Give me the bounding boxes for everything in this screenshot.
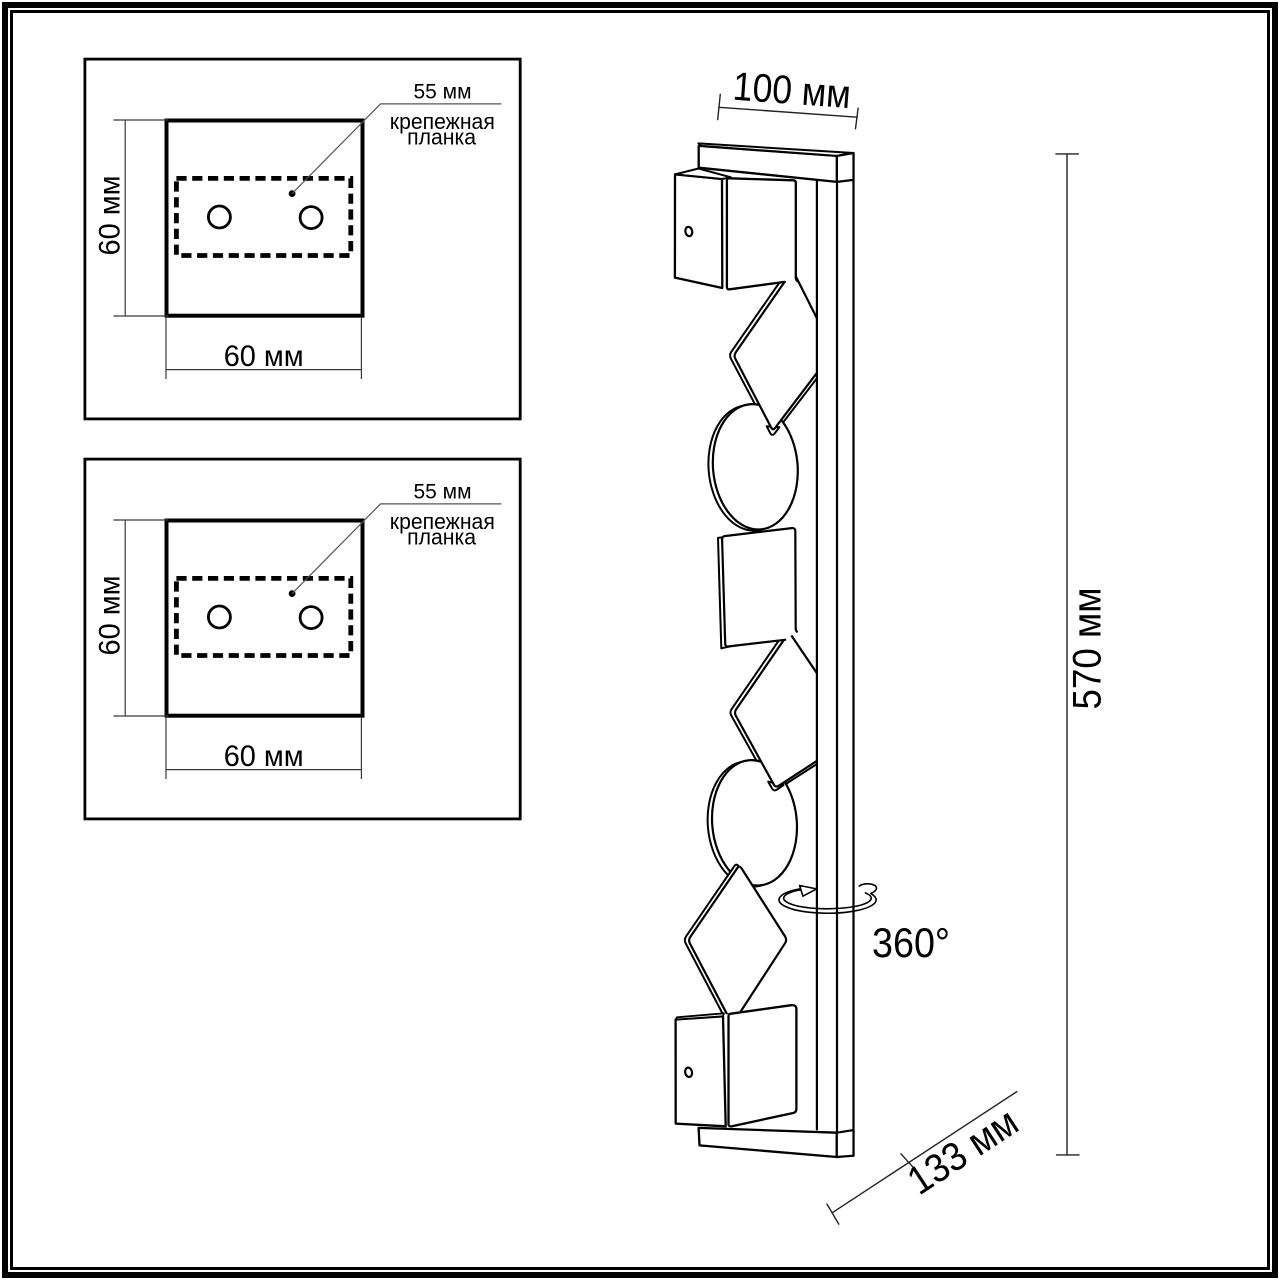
svg-text:570 мм: 570 мм: [1066, 588, 1110, 710]
svg-text:55 мм: 55 мм: [414, 81, 472, 104]
svg-text:55 мм: 55 мм: [414, 481, 472, 504]
svg-text:60 мм: 60 мм: [224, 340, 304, 373]
svg-text:планка: планка: [407, 124, 477, 149]
svg-text:60 мм: 60 мм: [94, 576, 127, 656]
svg-text:60 мм: 60 мм: [94, 176, 127, 256]
svg-text:360°: 360°: [872, 919, 950, 966]
svg-text:60 мм: 60 мм: [224, 740, 304, 773]
svg-text:планка: планка: [407, 524, 477, 549]
svg-text:100 мм: 100 мм: [731, 65, 852, 118]
